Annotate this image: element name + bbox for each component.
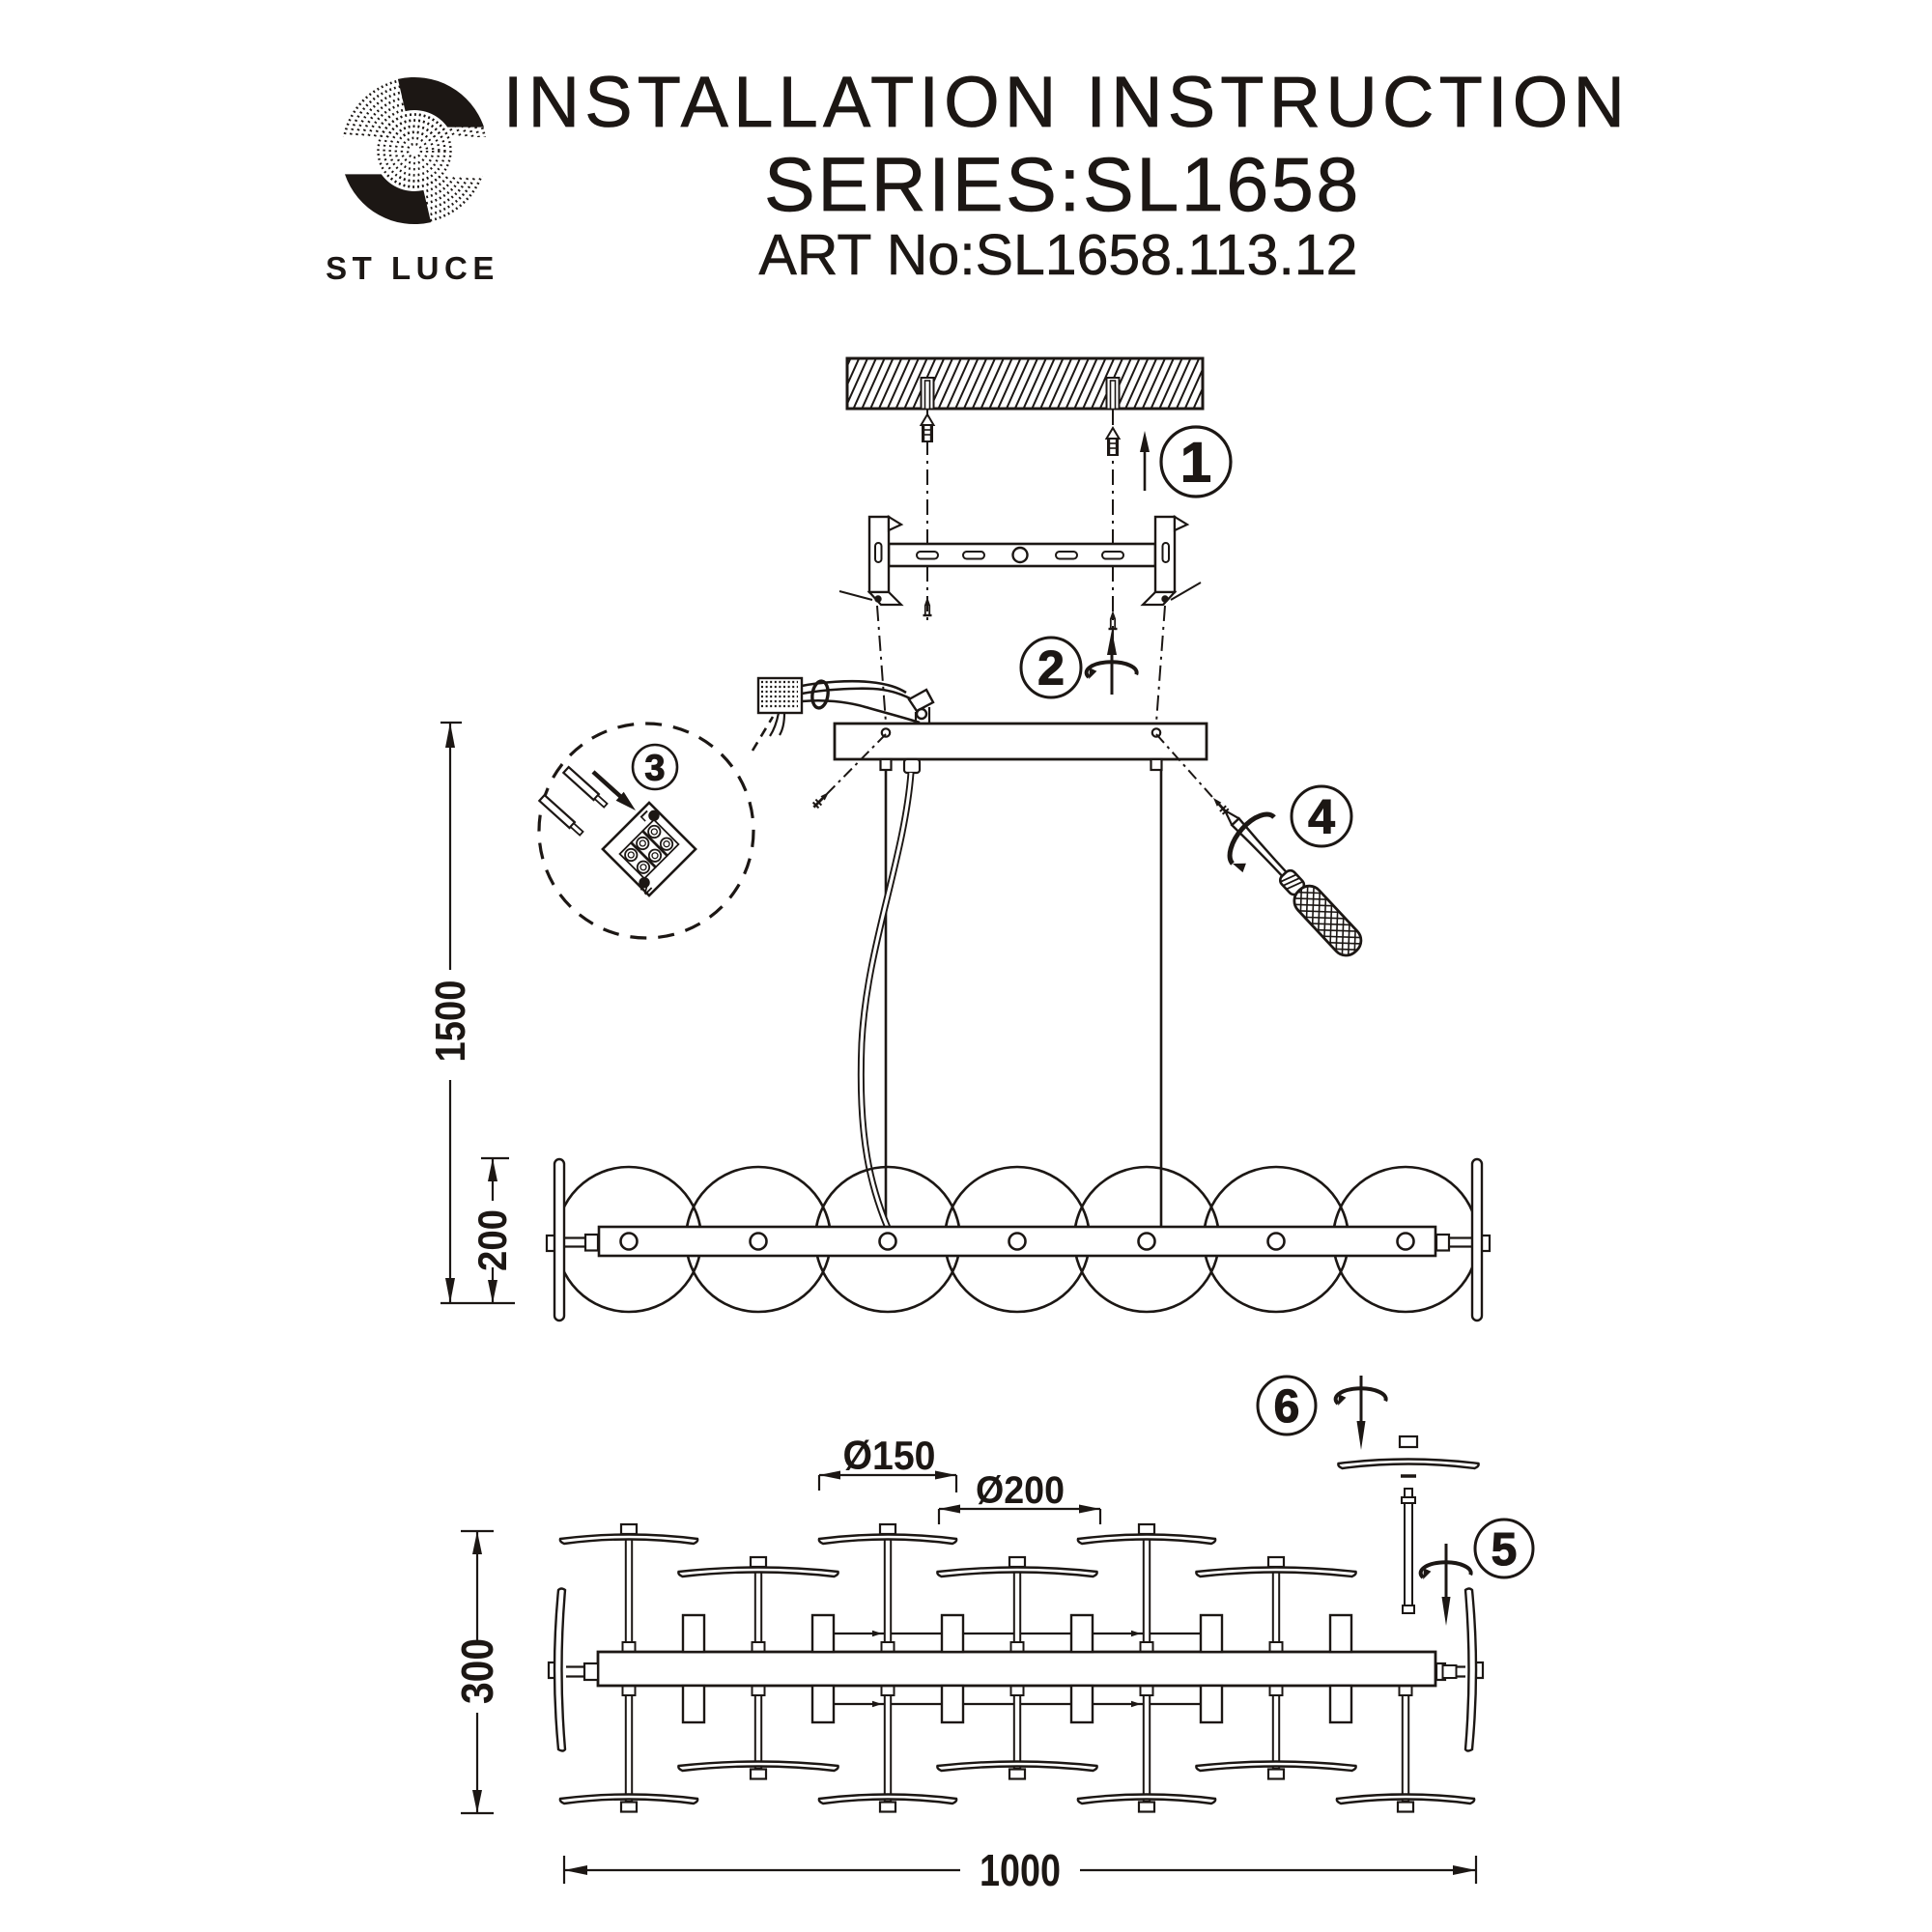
svg-text:ART No:SL1658.113.12: ART No:SL1658.113.12 — [759, 223, 1358, 287]
svg-text:4: 4 — [1308, 790, 1335, 844]
svg-text:300: 300 — [452, 1638, 502, 1704]
svg-text:1: 1 — [1180, 431, 1211, 494]
svg-text:ST LUCE: ST LUCE — [326, 250, 499, 286]
svg-text:3: 3 — [644, 748, 665, 788]
svg-text:INSTALLATION INSTRUCTION: INSTALLATION INSTRUCTION — [503, 62, 1630, 142]
svg-text:1000: 1000 — [980, 1845, 1061, 1895]
svg-text:SERIES:SL1658: SERIES:SL1658 — [764, 141, 1361, 227]
svg-text:200: 200 — [469, 1209, 515, 1271]
svg-text:6: 6 — [1274, 1381, 1300, 1433]
svg-text:2: 2 — [1037, 641, 1065, 696]
svg-text:Ø150: Ø150 — [843, 1433, 936, 1478]
svg-text:1500: 1500 — [427, 980, 474, 1063]
svg-text:5: 5 — [1492, 1524, 1518, 1576]
svg-text:Ø200: Ø200 — [976, 1469, 1065, 1512]
